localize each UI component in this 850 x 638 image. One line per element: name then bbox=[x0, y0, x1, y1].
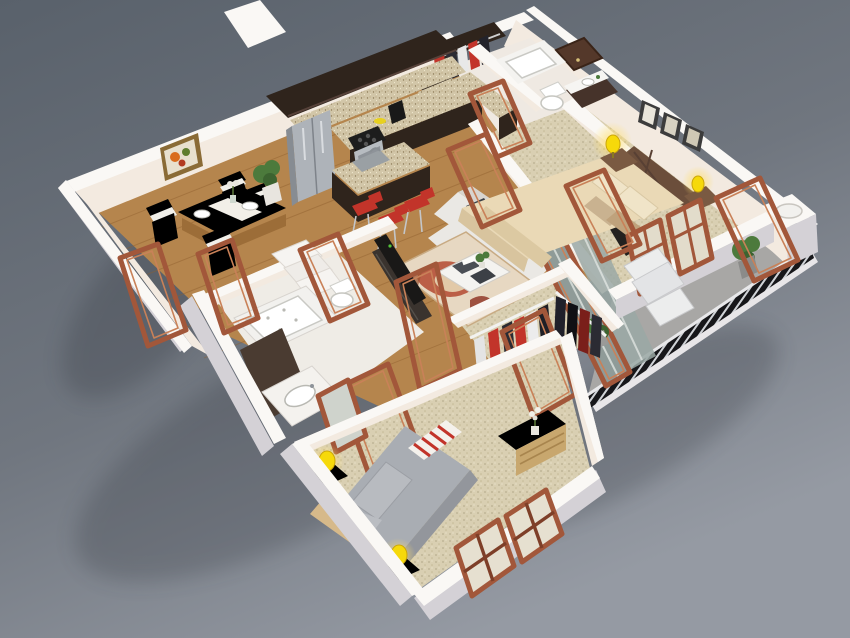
toilet2-bowl bbox=[541, 96, 563, 110]
faucet bbox=[310, 384, 314, 388]
vanity2-sink bbox=[582, 79, 594, 86]
vanity2-plant bbox=[596, 75, 600, 79]
floor-plan-render: 3d-isometric-floor-plan-render bbox=[0, 0, 850, 638]
tv-led bbox=[388, 244, 391, 247]
floor-plan-svg: 3d-isometric-floor-plan-render bbox=[0, 0, 850, 638]
plate-2 bbox=[242, 202, 258, 210]
lamp-1 bbox=[606, 135, 620, 153]
yellow-bowl bbox=[374, 118, 386, 124]
lamp-2 bbox=[692, 176, 704, 192]
plate-1 bbox=[194, 210, 210, 218]
entry-door-knob bbox=[576, 58, 580, 62]
